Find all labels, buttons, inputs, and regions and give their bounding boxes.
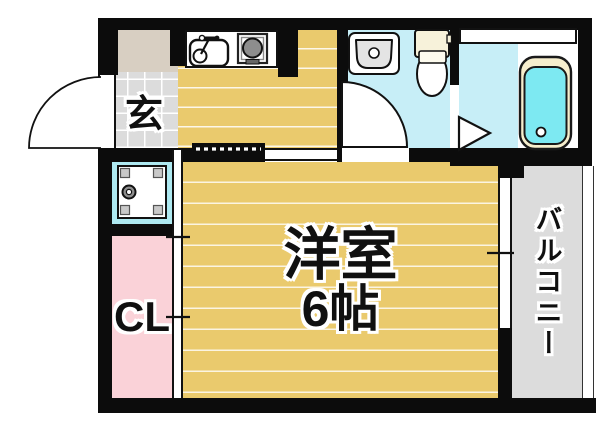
main-room-label: 洋室 6帖 [183, 170, 498, 390]
wall-pan-closet-bar [108, 224, 172, 236]
wall-left [98, 148, 112, 412]
wall-kitchen-divider [192, 143, 265, 162]
entrance-door-arc-icon [29, 77, 101, 148]
bath-window [459, 28, 577, 44]
washing-machine-pan [108, 160, 172, 224]
balcony-sliding-window [498, 178, 512, 328]
wall-stub-storage [170, 28, 185, 66]
toilet-room-floor [348, 30, 450, 148]
wall-toilet-bath [450, 18, 459, 85]
balcony-rail-strip [582, 166, 594, 398]
main-room-label-line2: 6帖 [302, 284, 380, 334]
wall-window-bottom-stub [498, 328, 512, 398]
main-room-label-line1: 洋室 [284, 227, 398, 284]
bath-floor [459, 44, 518, 148]
wall-stub-counter [278, 28, 298, 77]
storage-box [112, 30, 178, 72]
floor-plan: 玄 CL 洋室 6帖 バルコニー [0, 0, 613, 425]
genkan-label: 玄 [110, 72, 178, 148]
closet-label: CL [112, 236, 172, 398]
bathtub-floor [518, 44, 577, 148]
bath-doorway [450, 85, 459, 148]
wall-under-toilet [409, 148, 450, 162]
wall-left-corner [98, 18, 118, 75]
kitchen-room-opening [265, 148, 337, 161]
wall-bottom [98, 398, 596, 413]
wall-kitchen-bathroom [337, 18, 348, 162]
wall-right-upper [578, 18, 592, 166]
toilet-doorway [342, 148, 409, 162]
balcony-label: バルコニー [512, 166, 582, 398]
closet-sliding-door [172, 150, 183, 398]
kitchen-counter [185, 30, 278, 68]
